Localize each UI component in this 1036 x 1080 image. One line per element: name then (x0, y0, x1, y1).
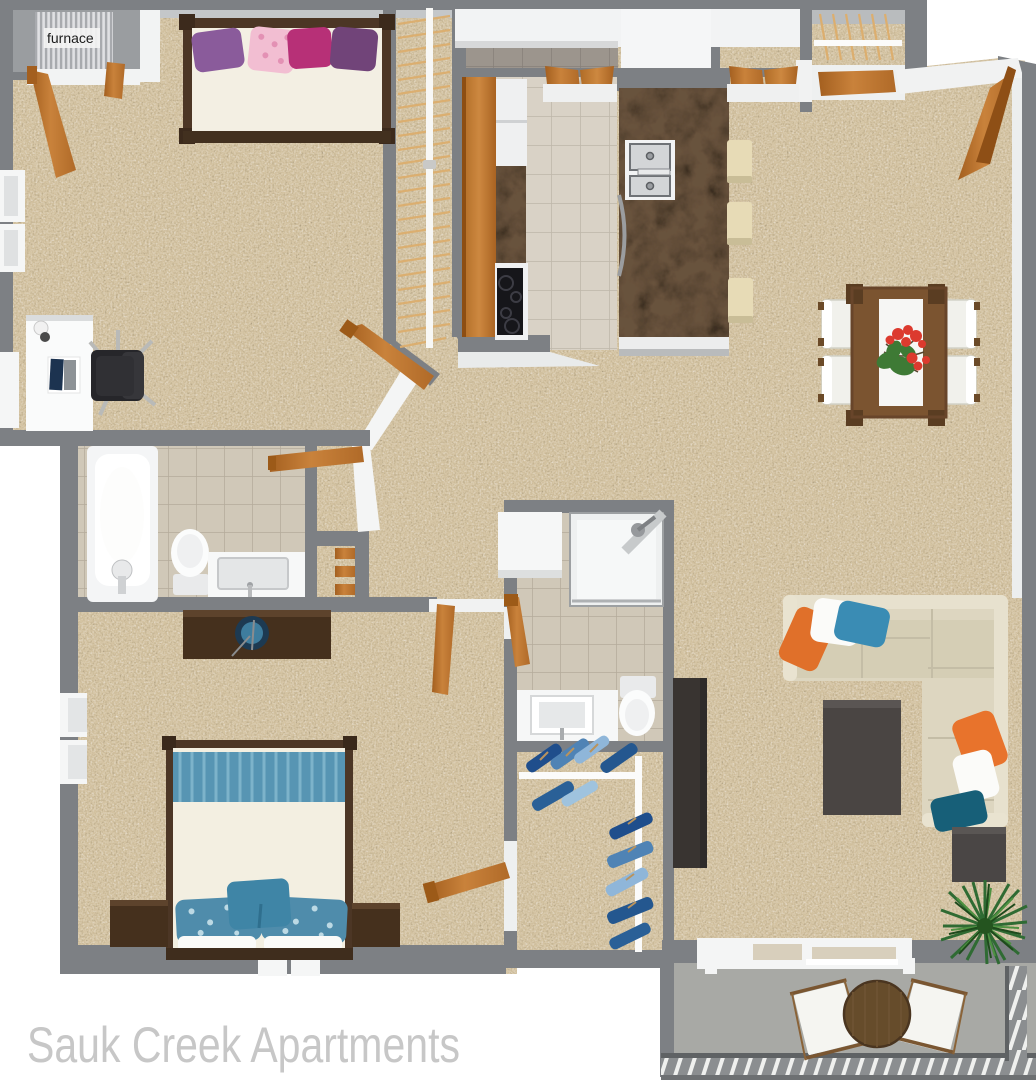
svg-text:Sauk Creek Apartments: Sauk Creek Apartments (27, 1017, 460, 1073)
svg-text:furnace: furnace (47, 30, 94, 46)
